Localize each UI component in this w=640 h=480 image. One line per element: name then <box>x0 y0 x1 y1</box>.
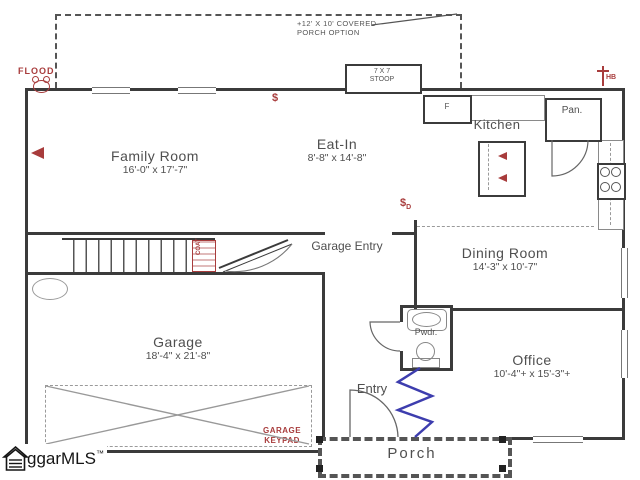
window-office <box>621 330 628 378</box>
porch-post-icon <box>499 436 506 443</box>
hose-bib-stem-icon <box>602 66 604 86</box>
eatin-label: Eat-In 8'-8" x 14'-8" <box>308 136 367 164</box>
window-family-1 <box>92 87 130 94</box>
range-burner-icon <box>611 182 621 192</box>
flood-label: FLOOD <box>18 66 55 76</box>
island-fixture-icon <box>498 174 507 182</box>
option-break-zigzag <box>398 368 432 437</box>
pwdr-door-icon <box>370 322 400 351</box>
family-room-dims: 16'-0" x 17'-7" <box>111 164 199 176</box>
logo-text: ggarMLS <box>27 449 96 469</box>
wall-familyroom-south <box>25 232 293 235</box>
staircase <box>62 240 192 272</box>
office-label: Office 10'-4"+ x 15'-3"+ <box>494 352 571 380</box>
wall-garage-right <box>322 272 325 453</box>
range-burner-icon <box>611 167 621 177</box>
coat-closet: COAT <box>192 240 216 272</box>
refrigerator-label: F <box>445 102 450 111</box>
flood-light-knob-right-icon <box>43 76 50 83</box>
kitchen-island <box>478 141 526 197</box>
stoop-label: 7 X 7 STOOP <box>370 68 394 84</box>
pwdr-toilet-tank-icon <box>412 358 440 368</box>
window-dining <box>621 248 628 298</box>
switch-dimmer-sub: D <box>406 204 411 211</box>
dining-label: Dining Room 14'-3" x 10'-7" <box>462 245 548 273</box>
tv-outlet-icon <box>31 147 44 159</box>
wall-left <box>25 88 28 453</box>
wall-dining-left <box>414 220 417 310</box>
hose-bib-label: HB <box>606 74 616 81</box>
wall-dining-bottom <box>452 308 625 311</box>
entry-label: Entry <box>357 382 387 397</box>
front-door-icon <box>350 390 398 437</box>
garage-keypad-label: GARAGE KEYPAD <box>263 426 301 445</box>
garage-name: Garage <box>146 334 211 350</box>
covered-porch-option-line1: +12' X 10' COVERED <box>297 19 376 28</box>
garage-label: Garage 18'-4" x 21'-8" <box>146 334 211 362</box>
garage-keypad-line2: KEYPAD <box>263 436 301 446</box>
wall-garage-top <box>25 272 325 275</box>
stoop-line1: 7 X 7 <box>370 68 394 76</box>
porch-post-icon <box>499 465 506 472</box>
logo-tm: ™ <box>96 449 104 458</box>
family-room-name: Family Room <box>111 148 199 164</box>
garage-keypad-line1: GARAGE <box>263 426 301 436</box>
wall-pwdr-bottom <box>400 368 453 371</box>
pwdr-sink-basin-icon <box>412 312 441 327</box>
office-dims: 10'-4"+ x 15'-3"+ <box>494 368 571 380</box>
range-burner-icon <box>600 167 610 177</box>
wall-pwdr-right <box>450 308 453 370</box>
garage-entry-door-icon <box>219 240 292 272</box>
wall-pwdr-left-upper <box>400 305 403 322</box>
wall-pwdr-top <box>400 305 453 308</box>
pantry-door-icon <box>552 140 588 176</box>
dining-name: Dining Room <box>462 245 548 261</box>
kitchen-label: Kitchen <box>474 118 521 133</box>
eatin-name: Eat-In <box>308 136 367 152</box>
covered-porch-option-label: +12' X 10' COVERED PORCH OPTION <box>297 19 376 37</box>
floor-plan: +12' X 10' COVERED PORCH OPTION 7 X 7 ST… <box>0 0 640 480</box>
stoop-line2: STOOP <box>370 76 394 84</box>
flood-light-knob-left-icon <box>32 76 39 83</box>
wall-eatin-south-left <box>290 232 325 235</box>
island-fixture-icon <box>498 152 507 160</box>
mls-logo: ggarMLS ™ <box>2 444 107 473</box>
eatin-dims: 8'-8" x 14'-8" <box>308 152 367 164</box>
island-centerline <box>488 144 489 190</box>
covered-porch-option-line2: PORCH OPTION <box>297 28 376 37</box>
dining-cased-opening <box>417 226 594 227</box>
garage-dims: 18'-4" x 21'-8" <box>146 350 211 362</box>
garage-entry-label: Garage Entry <box>311 240 382 254</box>
dining-dims: 14'-3" x 10'-7" <box>462 261 548 273</box>
porch-post-icon <box>316 436 323 443</box>
window-family-2 <box>178 87 216 94</box>
switch-entry-symbol: $ <box>272 92 278 104</box>
family-room-label: Family Room 16'-0" x 17'-7" <box>111 148 199 176</box>
range-burner-icon <box>600 182 610 192</box>
porch-label: Porch <box>387 445 436 462</box>
window-office-bottom <box>533 436 583 443</box>
coat-closet-label: COAT <box>196 238 202 255</box>
water-heater-icon <box>32 278 68 300</box>
switch-dimmer-symbol: $D <box>400 197 411 211</box>
wall-pwdr-left-lower <box>400 351 403 371</box>
logo-house-icon <box>2 445 29 472</box>
pantry-label: Pan. <box>562 105 583 117</box>
pwdr-label: Pwdr. <box>415 327 438 337</box>
office-name: Office <box>494 352 571 368</box>
porch-post-icon <box>316 465 323 472</box>
